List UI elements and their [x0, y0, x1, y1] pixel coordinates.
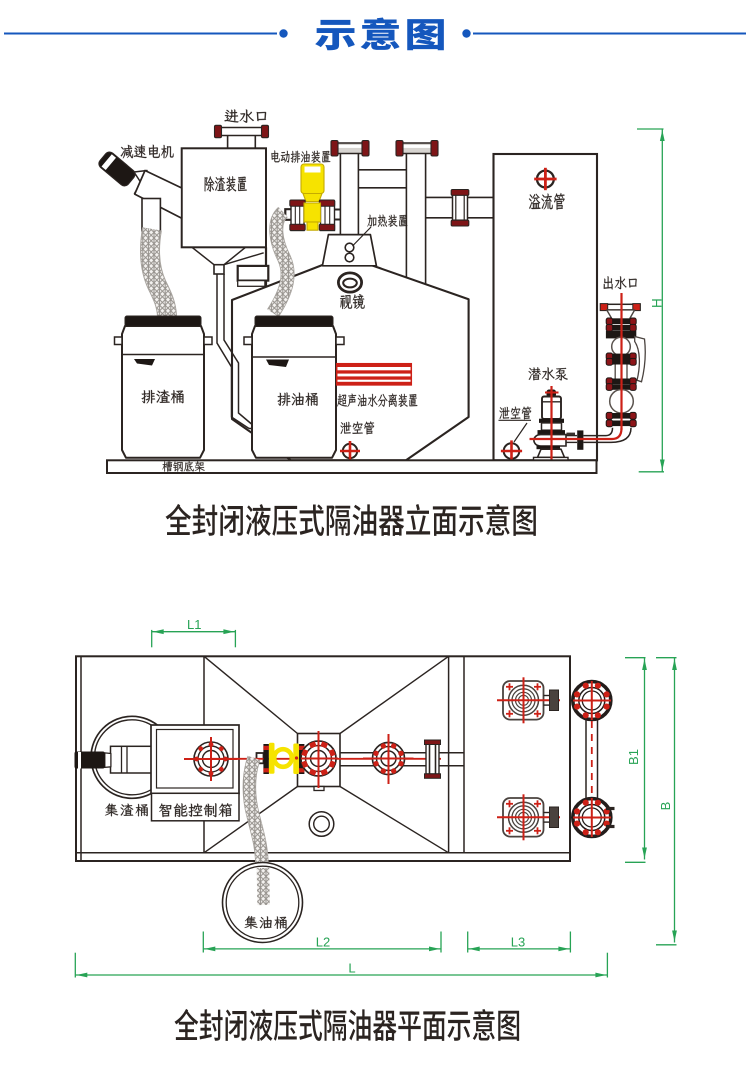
svg-text:L3: L3 — [511, 935, 525, 950]
svg-text:L1: L1 — [187, 617, 201, 632]
svg-text:L2: L2 — [316, 935, 330, 950]
svg-text:L: L — [348, 961, 355, 976]
svg-text:H: H — [650, 298, 665, 308]
svg-text:B: B — [658, 802, 673, 811]
svg-text:B1: B1 — [626, 749, 641, 765]
